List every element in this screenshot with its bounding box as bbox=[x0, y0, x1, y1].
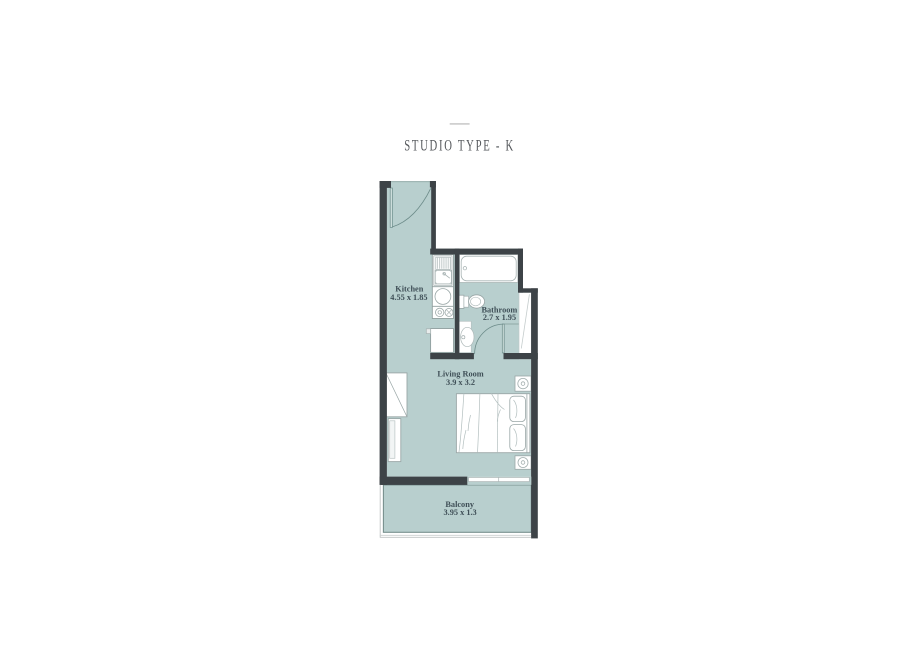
svg-text:STUDIO TYPE - K: STUDIO TYPE - K bbox=[404, 136, 515, 154]
svg-text:3.95 x 1.3: 3.95 x 1.3 bbox=[444, 508, 477, 517]
svg-text:3.9 x 3.2: 3.9 x 3.2 bbox=[446, 378, 475, 387]
svg-text:4.55 x 1.85: 4.55 x 1.85 bbox=[390, 293, 427, 302]
svg-text:2.7 x 1.95: 2.7 x 1.95 bbox=[483, 313, 516, 322]
